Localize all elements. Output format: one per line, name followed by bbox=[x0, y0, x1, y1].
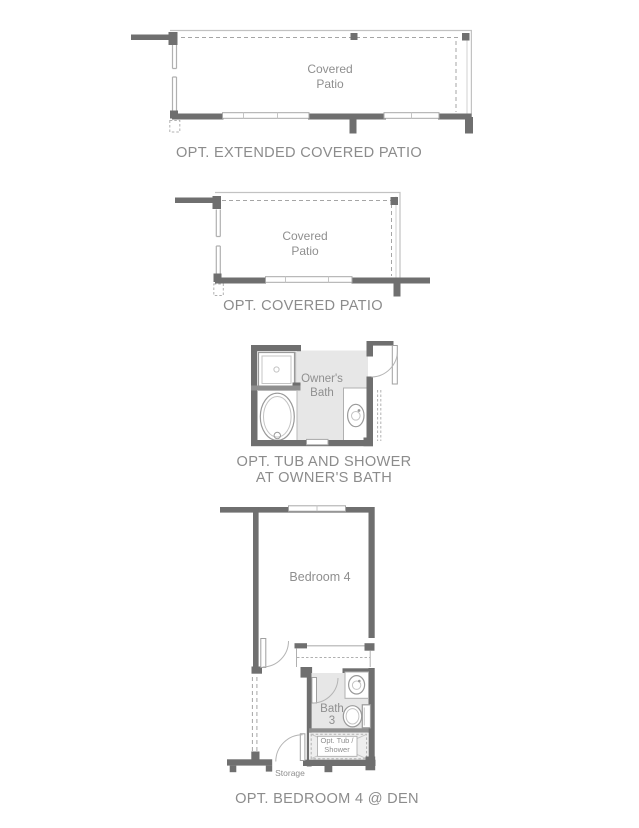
plan-caption-4: OPT. BEDROOM 4 @ DEN bbox=[235, 792, 419, 808]
wall-stub bbox=[465, 117, 473, 134]
room-label-bedroom-4: Bedroom 4 bbox=[289, 570, 350, 585]
wall bbox=[308, 114, 386, 120]
closet bbox=[295, 643, 375, 667]
door-swing-icon bbox=[372, 346, 398, 385]
wall bbox=[131, 35, 175, 41]
storage-label: Storage bbox=[275, 768, 305, 778]
wall-stub bbox=[325, 766, 333, 772]
shower-icon bbox=[259, 353, 295, 388]
wall bbox=[367, 377, 374, 445]
door-swing-icon bbox=[276, 734, 305, 762]
plan-caption-1: OPT. EXTENDED COVERED PATIO bbox=[176, 146, 422, 162]
wall bbox=[175, 198, 218, 204]
window bbox=[223, 113, 310, 119]
door-swing-icon bbox=[261, 639, 289, 668]
plan-extended-covered-patio bbox=[131, 31, 473, 134]
wall bbox=[251, 345, 301, 351]
dashed-wall-stub bbox=[214, 284, 224, 296]
screen-wall bbox=[216, 210, 220, 274]
wall bbox=[227, 759, 272, 765]
wall-post bbox=[169, 32, 178, 45]
plan-caption-2: OPT. COVERED PATIO bbox=[223, 299, 383, 315]
patio-post bbox=[462, 33, 470, 41]
wall bbox=[309, 728, 369, 732]
wall bbox=[251, 345, 257, 446]
wall-stub bbox=[394, 284, 401, 297]
screen-wall bbox=[173, 45, 177, 111]
wall-post bbox=[366, 757, 376, 771]
wall bbox=[172, 114, 224, 120]
wall bbox=[303, 760, 376, 766]
wall bbox=[370, 341, 394, 346]
wall-post bbox=[364, 438, 374, 447]
room-label-covered-patio-1: CoveredPatio bbox=[307, 62, 352, 92]
room-label-bath-3: Bath3 bbox=[320, 704, 344, 727]
patio-post bbox=[351, 33, 358, 40]
dashed-wall-stub bbox=[170, 121, 180, 133]
vanity-sink-icon bbox=[344, 388, 369, 442]
room-label-owners-bath: Owner'sBath bbox=[301, 373, 343, 400]
wall bbox=[215, 278, 266, 284]
vanity-sink-icon bbox=[345, 672, 369, 698]
wall-stub bbox=[266, 766, 272, 772]
plan-bedroom4-at-den bbox=[220, 506, 376, 772]
plan-caption-3: OPT. TUB AND SHOWERAT OWNER'S BATH bbox=[237, 455, 412, 486]
wall-post bbox=[213, 196, 222, 209]
dashed-wall bbox=[378, 390, 381, 441]
window bbox=[266, 277, 353, 283]
wall-post bbox=[301, 667, 313, 678]
window bbox=[307, 439, 329, 444]
bathtub-icon bbox=[258, 391, 298, 444]
room-label-covered-patio-2: CoveredPatio bbox=[282, 229, 327, 259]
wall bbox=[251, 386, 301, 391]
patio-post bbox=[391, 197, 399, 205]
opt-tub-shower-label: Opt. Tub /Shower bbox=[321, 737, 354, 754]
wall bbox=[369, 507, 375, 638]
floor-plan-sheet: CoveredPatio OPT. EXTENDED COVERED PATIO… bbox=[0, 0, 639, 828]
wall bbox=[253, 507, 259, 667]
wall-stub bbox=[350, 120, 357, 134]
wall-stub bbox=[230, 766, 237, 773]
toilet-icon bbox=[343, 705, 370, 728]
wall bbox=[352, 278, 431, 284]
dashed-den-wall bbox=[252, 677, 257, 752]
